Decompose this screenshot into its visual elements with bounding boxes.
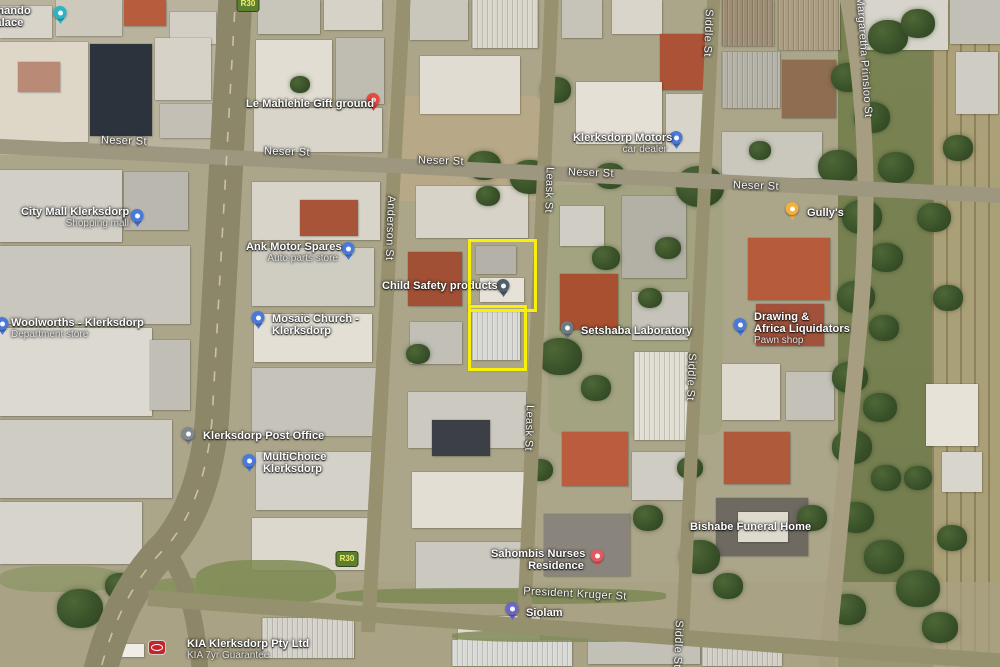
klerksdorp-motors-label[interactable]: Klerksdorp Motorscar dealer <box>573 132 667 156</box>
pin-glyph-icon <box>595 553 600 558</box>
satellite-map[interactable]: Neser StNeser StNeser StNeser StNeser St… <box>0 0 1000 667</box>
street-label-leask-st: Leask St <box>522 405 536 451</box>
woolworths-label[interactable]: Woolworths - KlerksdorpDepartment store <box>11 317 144 341</box>
siolam-title: Siolam <box>526 607 563 619</box>
pin-head-icon <box>342 242 355 255</box>
road-neser-st[interactable] <box>0 146 1000 196</box>
nurses-residence-pin[interactable] <box>591 549 604 567</box>
pin-glyph-icon <box>58 10 63 15</box>
pin-head-icon <box>561 321 574 334</box>
street-label-neser-st: Neser St <box>264 145 310 159</box>
nurses-residence-title: Residence <box>491 560 584 572</box>
pin-glyph-icon <box>247 458 252 463</box>
pin-glyph-icon <box>0 321 5 326</box>
gift-ground-label[interactable]: Le Mahlehle Gift ground <box>246 98 374 110</box>
kia-dealer-title: KIA Klerksdorp Pty Ltd <box>187 638 309 650</box>
road-siddle-st[interactable] <box>682 0 714 644</box>
palace-title: amando <box>0 5 31 17</box>
klerksdorp-motors-subtitle: car dealer <box>573 144 667 156</box>
street-label-neser-st: Neser St <box>101 134 147 148</box>
route-shield-r30: R30 <box>237 0 260 12</box>
klerksdorp-motors-title: Klerksdorp Motors <box>573 132 667 144</box>
laboratory-pin[interactable] <box>561 321 574 339</box>
pin-head-icon <box>54 6 67 19</box>
gift-ground-title: Le Mahlehle Gift ground <box>246 98 374 110</box>
pin-head-icon <box>131 209 144 222</box>
pin-glyph-icon <box>674 135 679 140</box>
city-mall-label[interactable]: City Mall KlerksdorpShopping mall <box>21 206 129 230</box>
nurses-residence-title: Sahombis Nurses <box>491 548 584 560</box>
city-mall-title: City Mall Klerksdorp <box>21 206 129 218</box>
woolworths-subtitle: Department store <box>11 329 144 341</box>
street-label-leask-st: Leask St <box>542 167 556 213</box>
pin-head-icon <box>786 202 799 215</box>
ank-motor-spares-pin[interactable] <box>342 242 355 260</box>
street-label-siddle-st: Siddle St <box>671 620 685 667</box>
pin-glyph-icon <box>256 315 261 320</box>
kia-logo[interactable] <box>149 641 165 654</box>
post-office-pin[interactable] <box>182 427 195 445</box>
drawing-africa-liquidators-title: Africa Liquidators <box>754 323 850 335</box>
pin-head-icon <box>506 602 519 615</box>
post-office-title: Klerksdorp Post Office <box>203 430 324 442</box>
multichoice-title: Klerksdorp <box>263 463 326 475</box>
street-label-anderson-st: Anderson St <box>383 195 397 260</box>
church-title: Mosaic Church - <box>272 313 359 325</box>
multichoice-label[interactable]: MultiChoiceKlerksdorp <box>263 451 326 475</box>
church-label[interactable]: Mosaic Church -Klerksdorp <box>272 313 359 337</box>
street-label-neser-st: Neser St <box>733 179 779 193</box>
nurses-residence-label[interactable]: Sahombis NursesResidence <box>491 548 584 572</box>
pin-glyph-icon <box>186 431 191 436</box>
highlight-rect-lower <box>468 305 527 371</box>
pin-head-icon <box>591 549 604 562</box>
palace-label[interactable]: amandoPalace <box>0 5 31 29</box>
laboratory-title: Setshaba Laboratory <box>581 325 692 337</box>
gullys-title: Gully's <box>807 207 844 219</box>
street-label-neser-st: Neser St <box>568 166 614 180</box>
pin-glyph-icon <box>135 213 140 218</box>
route-shield-r30: R30 <box>336 551 359 567</box>
highlight-rect-upper <box>468 239 537 312</box>
pin-glyph-icon <box>790 206 795 211</box>
multichoice-title: MultiChoice <box>263 451 326 463</box>
gullys-label[interactable]: Gully's <box>807 207 844 219</box>
kia-dealer-label[interactable]: KIA Klerksdorp Pty LtdKIA 7yr Guarantee <box>187 638 309 662</box>
pin-glyph-icon <box>565 325 570 330</box>
siolam-pin[interactable] <box>506 602 519 620</box>
ank-motor-spares-title: Ank Motor Spares <box>246 241 338 253</box>
pin-head-icon <box>0 317 9 330</box>
pin-head-icon <box>734 318 747 331</box>
drawing-africa-liquidators-label[interactable]: Drawing &Africa LiquidatorsPawn shop <box>754 311 850 347</box>
woolworths-title: Woolworths - Klerksdorp <box>11 317 144 329</box>
gullys-pin[interactable] <box>786 202 799 220</box>
pin-head-icon <box>243 454 256 467</box>
drawing-africa-liquidators-title: Drawing & <box>754 311 850 323</box>
multichoice-pin[interactable] <box>243 454 256 472</box>
pin-head-icon <box>252 311 265 324</box>
street-label-siddle-st: Siddle St <box>701 9 715 57</box>
pin-glyph-icon <box>346 246 351 251</box>
kia-oval-icon <box>151 644 163 651</box>
drawing-africa-liquidators-subtitle: Pawn shop <box>754 335 850 347</box>
laboratory-label[interactable]: Setshaba Laboratory <box>581 325 692 337</box>
street-label-neser-st: Neser St <box>418 154 464 168</box>
siolam-label[interactable]: Siolam <box>526 607 563 619</box>
church-pin[interactable] <box>252 311 265 329</box>
pin-glyph-icon <box>510 606 515 611</box>
palace-title: Palace <box>0 17 31 29</box>
woolworths-pin[interactable] <box>0 317 9 335</box>
ank-motor-spares-subtitle: Auto parts store <box>246 253 338 265</box>
pin-head-icon <box>182 427 195 440</box>
city-mall-pin[interactable] <box>131 209 144 227</box>
post-office-label[interactable]: Klerksdorp Post Office <box>203 430 324 442</box>
pin-glyph-icon <box>738 322 743 327</box>
city-mall-subtitle: Shopping mall <box>21 218 129 230</box>
palace-pin[interactable] <box>54 6 67 24</box>
bishabe-funeral-home-title: Bishabe Funeral Home <box>690 521 811 533</box>
church-title: Klerksdorp <box>272 325 359 337</box>
road-leask-st[interactable] <box>524 0 552 625</box>
ank-motor-spares-label[interactable]: Ank Motor SparesAuto parts store <box>246 241 338 265</box>
drawing-africa-liquidators-pin[interactable] <box>734 318 747 336</box>
kia-dealer-subtitle: KIA 7yr Guarantee <box>187 650 309 662</box>
bishabe-funeral-home-label[interactable]: Bishabe Funeral Home <box>690 521 811 533</box>
street-label-siddle-st: Siddle St <box>684 353 698 401</box>
